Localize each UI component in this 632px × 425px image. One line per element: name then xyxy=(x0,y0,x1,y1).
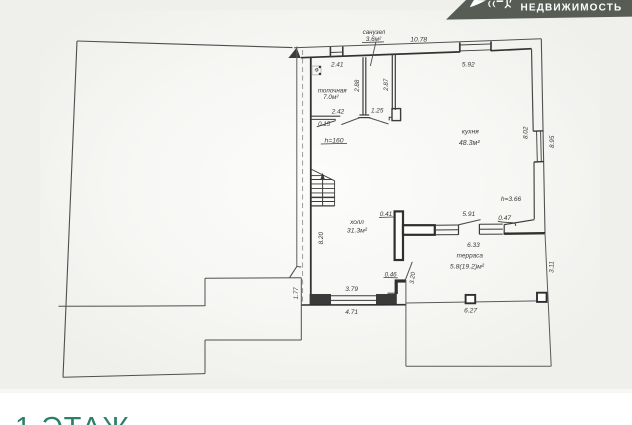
svg-text:5.8(19.2)м²: 5.8(19.2)м² xyxy=(450,263,485,270)
svg-text:1.25: 1.25 xyxy=(371,108,384,115)
svg-text:санузел: санузел xyxy=(363,29,386,36)
svg-text:4.71: 4.71 xyxy=(345,309,358,316)
svg-text:3.11: 3.11 xyxy=(548,261,555,273)
svg-text:5.91: 5.91 xyxy=(462,211,475,218)
svg-text:8.95: 8.95 xyxy=(549,135,556,148)
svg-text:6.33: 6.33 xyxy=(467,242,480,249)
svg-text:8.02: 8.02 xyxy=(522,126,529,139)
svg-text:1 ЭТАЖ: 1 ЭТАЖ xyxy=(15,412,130,425)
svg-text:холл: холл xyxy=(349,219,364,226)
svg-text:НЕДВИЖИМОСТЬ: НЕДВИЖИМОСТЬ xyxy=(521,3,623,14)
svg-text:1.77: 1.77 xyxy=(293,287,300,300)
svg-text:5.92: 5.92 xyxy=(462,61,475,68)
svg-text:6.27: 6.27 xyxy=(464,307,477,314)
svg-text:кухня: кухня xyxy=(462,128,479,135)
svg-text:2.88: 2.88 xyxy=(354,79,361,93)
svg-text:2.87: 2.87 xyxy=(383,78,390,92)
svg-text:терраса: терраса xyxy=(457,253,484,260)
svg-text:0.47: 0.47 xyxy=(498,215,511,222)
svg-text:48.3м²: 48.3м² xyxy=(459,140,480,147)
svg-text:10.78: 10.78 xyxy=(410,36,427,43)
svg-text:2.41: 2.41 xyxy=(330,61,344,68)
svg-text:2.42: 2.42 xyxy=(331,109,345,116)
svg-text:31.3м²: 31.3м² xyxy=(347,228,368,235)
svg-text:7.0м²: 7.0м² xyxy=(323,94,339,101)
svg-text:3.79: 3.79 xyxy=(345,286,358,293)
svg-text:8.20: 8.20 xyxy=(318,232,325,245)
svg-text:h=3.66: h=3.66 xyxy=(501,196,522,203)
